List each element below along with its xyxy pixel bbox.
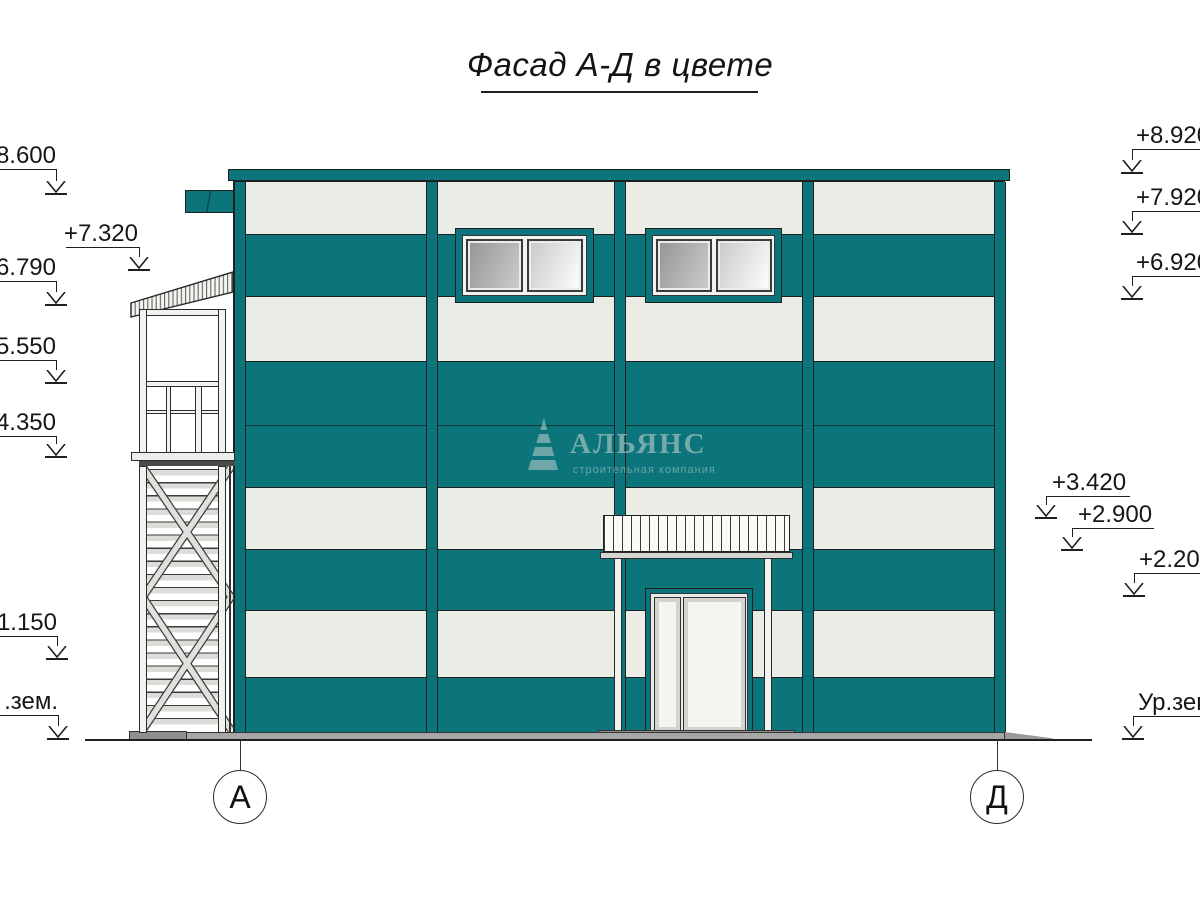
elevation-value: +8.920 — [1136, 122, 1200, 149]
leader-drop — [1132, 149, 1133, 160]
leader-line — [1133, 716, 1200, 717]
elevation-value: +7.320 — [58, 220, 138, 247]
pyramid-logo-icon — [528, 418, 558, 470]
leader-tick — [1123, 595, 1145, 597]
elevation-arrow-icon — [48, 726, 68, 738]
window-pane — [656, 239, 712, 292]
leader-drop — [56, 436, 57, 444]
leader-line — [0, 715, 59, 716]
leader-line — [0, 436, 57, 437]
elevation-arrow-icon — [1062, 537, 1082, 549]
railing-rail — [146, 410, 219, 414]
platform-slab — [131, 452, 235, 461]
leader-drop — [1132, 211, 1133, 221]
drawing-title: Фасад А-Д в цвете — [400, 46, 840, 84]
ground-line — [85, 739, 1092, 741]
railing-rail — [146, 381, 219, 387]
elevation-value: 6.790 — [0, 254, 56, 281]
leader-tick — [1122, 738, 1144, 740]
leader-tick — [45, 382, 67, 384]
facade-elevation-drawing: Фасад А-Д в цвете 8.600 +7.320 6.790 5.5… — [0, 0, 1200, 900]
window-pane — [466, 239, 523, 292]
door-leaf — [683, 597, 746, 732]
axis-bubble-a: А — [213, 770, 267, 824]
elevation-arrow-icon — [46, 181, 66, 193]
leader-drop — [57, 636, 58, 646]
stair-stringer-line — [229, 466, 231, 733]
leader-line — [1134, 573, 1200, 574]
pilaster — [802, 182, 814, 738]
entrance-canopy — [603, 515, 790, 552]
elevation-arrow-icon — [46, 370, 66, 382]
canopy-post — [764, 558, 772, 734]
elevation-arrow-icon — [46, 292, 66, 304]
leader-line — [1132, 211, 1200, 212]
elevation-value: +7.920 — [1136, 184, 1200, 211]
leader-drop — [1046, 496, 1047, 505]
pilaster — [234, 182, 246, 738]
pilaster — [994, 182, 1006, 738]
leader-tick — [47, 738, 69, 740]
window-pane — [527, 239, 583, 292]
stair-post — [139, 466, 147, 733]
elevation-arrow-icon — [1036, 505, 1056, 517]
elevation-value: Ур.зем. — [1138, 689, 1200, 716]
elevation-value: +2.200 — [1139, 546, 1200, 573]
leader-tick — [45, 193, 67, 195]
elevation-arrow-icon — [1122, 160, 1142, 172]
axis-label: А — [229, 779, 250, 816]
leader-tick — [45, 304, 67, 306]
leader-drop — [1072, 528, 1073, 537]
leader-tick — [1121, 172, 1143, 174]
railing-mullion — [195, 386, 202, 453]
title-underline — [481, 91, 758, 93]
leader-drop — [56, 281, 57, 292]
axis-bubble-d: Д — [970, 770, 1024, 824]
leader-line — [1132, 276, 1200, 277]
leader-tick — [1121, 298, 1143, 300]
elevation-value: 1.150 — [0, 609, 57, 636]
elevation-value: +3.420 — [1052, 469, 1132, 496]
window-pane — [716, 239, 772, 292]
leader-drop — [56, 169, 57, 181]
elevation-value: +2.900 — [1078, 501, 1158, 528]
leader-line — [0, 281, 57, 282]
stair-roof-beam — [139, 309, 226, 316]
elevation-value: +6.920 — [1136, 249, 1200, 276]
wall-protrusion — [185, 190, 235, 213]
leader-drop — [56, 360, 57, 370]
canopy-post — [614, 558, 622, 734]
leader-drop — [58, 715, 59, 726]
leader-line — [66, 247, 140, 248]
leader-drop — [1133, 716, 1134, 726]
elevation-value: 5.550 — [0, 333, 56, 360]
elevation-value: .зем. — [0, 688, 58, 715]
stair-post — [218, 309, 226, 458]
leader-drop — [139, 247, 140, 257]
elevation-arrow-icon — [1122, 286, 1142, 298]
leader-tick — [45, 456, 67, 458]
leader-tick — [1035, 517, 1057, 519]
elevation-arrow-icon — [1124, 583, 1144, 595]
door-leaf — [654, 597, 681, 732]
watermark-logo: АЛЬЯНС строительная компания — [524, 416, 714, 482]
railing-mullion — [166, 386, 171, 453]
elevation-arrow-icon — [1123, 726, 1143, 738]
leader-tick — [1061, 549, 1083, 551]
watermark-tagline: строительная компания — [573, 464, 716, 476]
axis-line — [240, 740, 241, 771]
parapet-cap — [228, 169, 1010, 181]
leader-line — [1072, 528, 1154, 529]
elevation-value: 4.350 — [0, 409, 56, 436]
elevation-arrow-icon — [46, 444, 66, 456]
leader-tick — [46, 658, 68, 660]
leader-tick — [1121, 233, 1143, 235]
pilaster — [426, 182, 438, 738]
elevation-value: 8.600 — [0, 142, 56, 169]
leader-line — [0, 360, 57, 361]
watermark-company: АЛЬЯНС — [570, 428, 707, 461]
elevation-arrow-icon — [1122, 221, 1142, 233]
leader-line — [0, 169, 57, 170]
leader-drop — [1134, 573, 1135, 583]
axis-line — [997, 740, 998, 771]
leader-line — [1132, 149, 1200, 150]
leader-line — [0, 636, 58, 637]
leader-drop — [1132, 276, 1133, 286]
elevation-arrow-icon — [47, 646, 67, 658]
stair-post — [218, 466, 226, 733]
leader-line — [1046, 496, 1130, 497]
axis-label: Д — [986, 779, 1008, 816]
